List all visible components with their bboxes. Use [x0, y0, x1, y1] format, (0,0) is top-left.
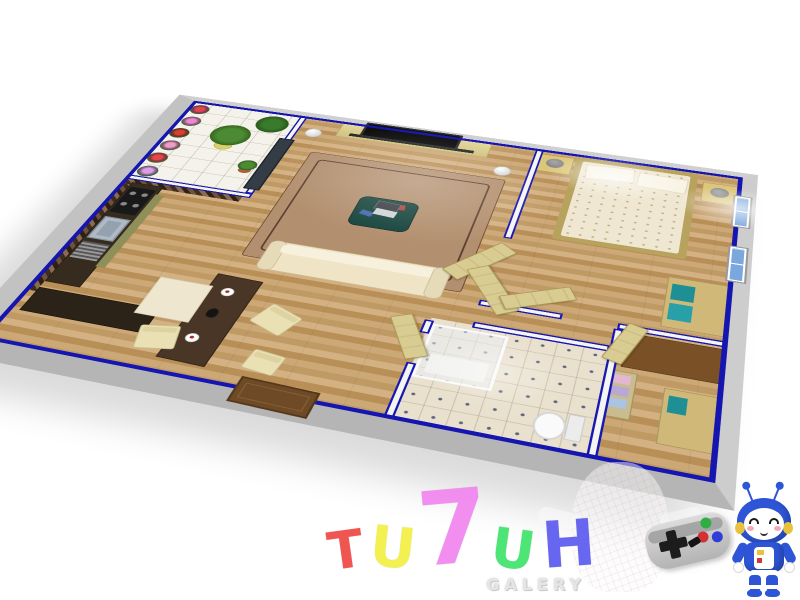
robot-mouth	[760, 530, 768, 536]
watermark-letter-h: H	[540, 516, 597, 574]
bottle	[204, 308, 221, 319]
robot-foot-left	[747, 589, 762, 597]
robot-mascot	[733, 490, 795, 598]
window-bedroom-1	[731, 195, 753, 229]
robot-torso	[744, 542, 784, 572]
robot-chip-red	[757, 558, 762, 563]
robot-belly-panel	[754, 547, 774, 569]
chair-2	[132, 324, 181, 349]
robot-ear-right	[783, 522, 793, 534]
table-lamp-right	[710, 187, 730, 199]
gallery-image: T U 7 U H GALERY	[0, 0, 800, 600]
wood-floor	[0, 101, 743, 483]
window-bedroom-2	[725, 245, 749, 284]
table-lamp-left	[545, 158, 566, 169]
towel-purple	[609, 385, 629, 397]
watermark-title: T U 7 U H	[328, 486, 638, 573]
gamepad-button-blue	[711, 530, 724, 543]
storage-cabinet	[656, 388, 721, 455]
robot-eye-right	[769, 518, 779, 524]
robot-chip-yellow	[757, 550, 764, 555]
robot-head	[737, 498, 791, 544]
watermark-letter-u1: U	[368, 523, 418, 575]
robot-foot-right	[765, 589, 780, 597]
apartment-render	[0, 95, 758, 511]
robot-hand-right	[784, 562, 795, 573]
robot-cheek-left	[747, 526, 754, 531]
robot-hand-left	[733, 562, 744, 573]
watermark: T U 7 U H GALERY	[328, 486, 638, 594]
coffee-cup	[219, 287, 237, 297]
towel-blue	[607, 397, 628, 410]
robot-cheek-right	[774, 526, 781, 531]
watermark-letter-t: T	[325, 526, 366, 575]
watermark-letter-7: 7	[414, 483, 492, 576]
shower-base	[424, 354, 490, 383]
storage-cabinet-door	[667, 396, 688, 416]
towel-pink	[612, 373, 632, 385]
dresser-drawer-bottom	[667, 303, 693, 323]
dresser-drawer-top	[670, 284, 695, 303]
coffee-cup	[183, 332, 202, 343]
watermark-letter-u2: U	[488, 524, 538, 576]
robot-eye-left	[749, 518, 759, 524]
robot-face	[744, 508, 784, 540]
gamepad-select-button	[687, 536, 701, 548]
